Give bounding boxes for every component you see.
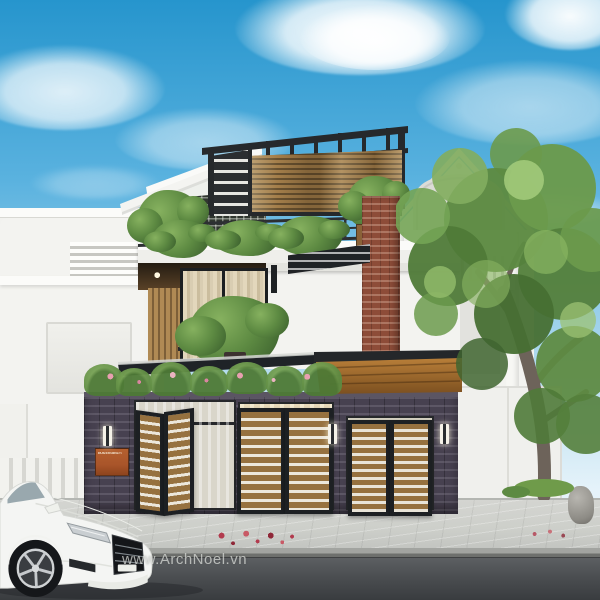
- cloud: [300, 5, 450, 70]
- front-wheel: [8, 536, 62, 597]
- parked-white-car: [0, 470, 230, 600]
- tree-foliage: [396, 128, 600, 454]
- wall-lamp: [328, 424, 337, 444]
- side-gate-left: [348, 420, 390, 516]
- terrace-plant: [152, 220, 210, 258]
- planter-flowers: [96, 368, 336, 388]
- exterior-render-scene: DUC THONG HOMESTATION: [0, 0, 600, 600]
- clerestory-pane: [271, 265, 277, 293]
- wall-lamp: [103, 426, 112, 446]
- main-gate-right: [285, 408, 333, 514]
- fallen-petals: [528, 526, 572, 542]
- watermark-text: www.ArchNoel.vn: [122, 551, 452, 571]
- louver-panel: [210, 148, 252, 216]
- street-tree: [396, 124, 600, 500]
- house-sign-line2: HOMESTATION: [98, 452, 122, 456]
- main-gate-left: [237, 408, 285, 514]
